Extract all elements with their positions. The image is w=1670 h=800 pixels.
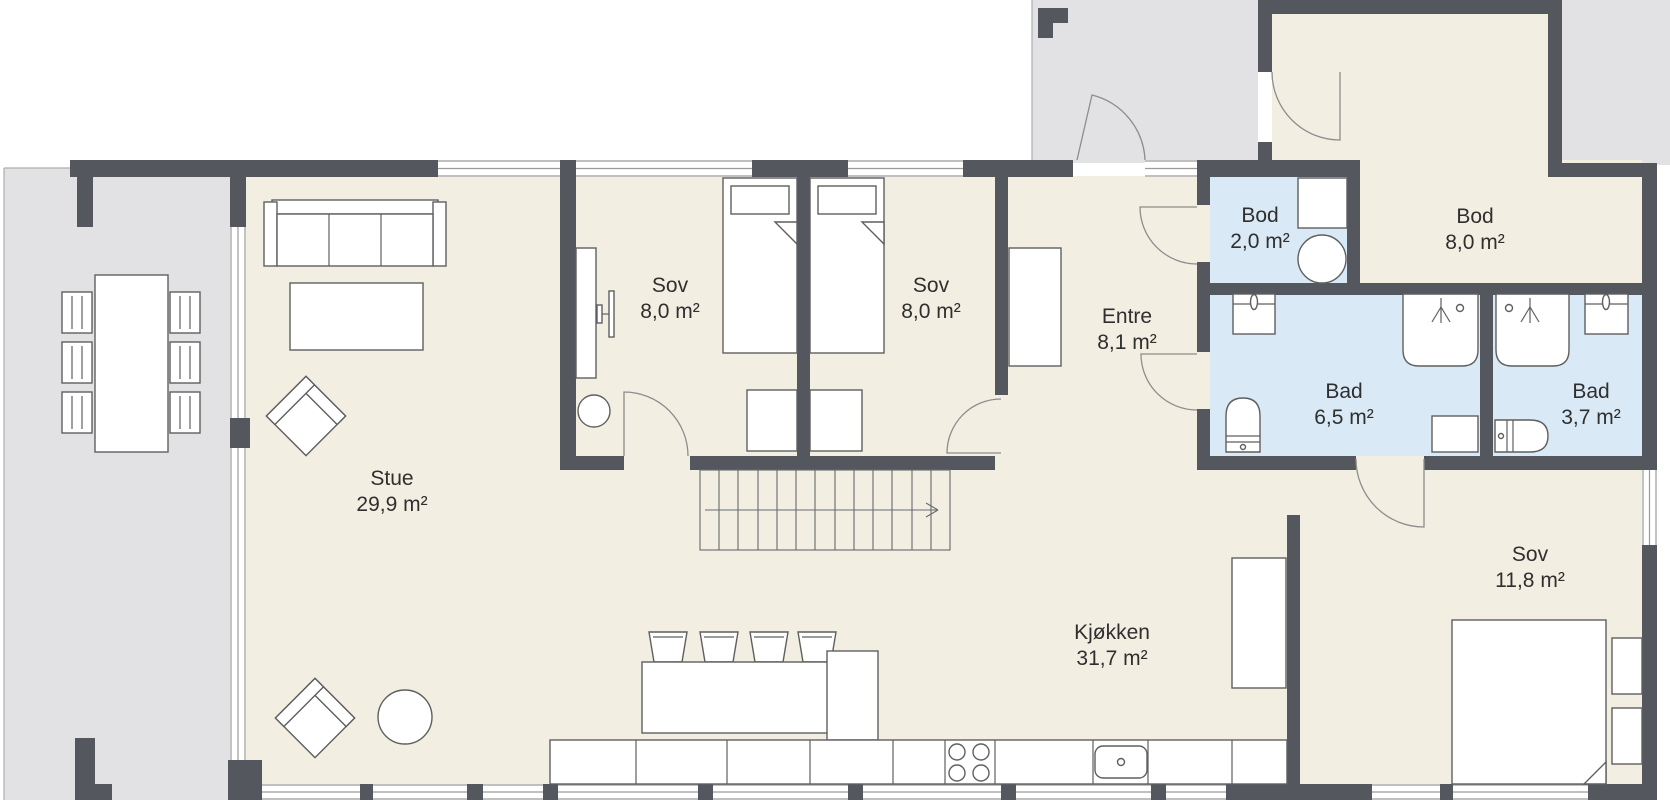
shelf (1298, 178, 1347, 228)
pillow (818, 186, 876, 214)
chair (62, 342, 92, 383)
bar-stool (750, 632, 788, 662)
chair (62, 392, 92, 433)
shower (1496, 294, 1569, 366)
terrace-dining-set (62, 275, 200, 452)
dining-table (95, 275, 168, 452)
outdoor-corner (1562, 0, 1670, 165)
entrance-porch (1032, 0, 1258, 163)
chair (170, 292, 200, 333)
room-area-bod-large: 8,0 m² (1445, 231, 1505, 254)
windows-south (262, 784, 1588, 800)
room-label-sov3: Sov (1512, 543, 1549, 566)
double-bed (1452, 620, 1606, 784)
coffee-table (290, 283, 423, 350)
shower (1403, 294, 1478, 366)
room-label-sov1: Sov (652, 274, 689, 297)
window-west-1 (230, 227, 246, 418)
hall-closet (1009, 248, 1061, 366)
room-label-sov2: Sov (913, 274, 950, 297)
window-north-3 (848, 160, 963, 177)
window-west-2 (230, 448, 246, 760)
window-east (1642, 470, 1657, 545)
side-table (378, 690, 432, 744)
room-area-sov2: 8,0 m² (901, 300, 961, 323)
sink (1233, 294, 1275, 334)
terrace (4, 168, 230, 800)
room-area-sov1: 8,0 m² (640, 300, 700, 323)
room-label-entre: Entre (1102, 305, 1152, 328)
chair (170, 392, 200, 433)
pillow (731, 186, 789, 214)
nightstand (1612, 708, 1642, 764)
room-area-entre: 8,1 m² (1097, 331, 1157, 354)
dresser (810, 390, 862, 451)
room-area-bad-small: 3,7 m² (1561, 406, 1621, 429)
kitchen-sink (1095, 746, 1147, 778)
sofa (264, 200, 446, 266)
room-label-bad-small: Bad (1572, 380, 1609, 403)
toilet (1495, 420, 1548, 452)
room-label-bod-small: Bod (1241, 204, 1278, 227)
room-label-bod-large: Bod (1456, 205, 1493, 228)
chair (62, 292, 92, 333)
kitchen-island (642, 662, 843, 733)
room-label-stue: Stue (370, 467, 413, 490)
kitchen-counter (550, 740, 1287, 784)
floors (246, 14, 1642, 784)
dresser (747, 390, 797, 451)
window-north-2 (576, 160, 752, 177)
nightstand (1612, 638, 1642, 694)
room-area-kjokken: 31,7 m² (1076, 647, 1147, 670)
stool (578, 395, 610, 427)
room-label-kjokken: Kjøkken (1074, 621, 1150, 644)
wardrobe (576, 248, 596, 378)
room-label-bad-large: Bad (1325, 380, 1362, 403)
room-area-stue: 29,9 m² (356, 493, 427, 516)
washing-machine (1298, 235, 1346, 283)
tall-cabinet (827, 651, 878, 740)
bar-stool (649, 632, 687, 662)
floor-plan: Stue 29,9 m² Sov 8,0 m² Sov 8,0 m² Entre… (0, 0, 1670, 800)
entre-furniture (1009, 248, 1061, 366)
floor-plan-canvas: Stue 29,9 m² Sov 8,0 m² Sov 8,0 m² Entre… (0, 0, 1670, 800)
room-area-sov3: 11,8 m² (1495, 569, 1565, 592)
bar-stool (700, 632, 738, 662)
room-area-bad-large: 6,5 m² (1314, 406, 1374, 429)
toilet (1226, 398, 1260, 452)
chair (170, 342, 200, 383)
window-sidelight (1145, 160, 1197, 177)
window-north-1 (438, 160, 560, 177)
washer (1432, 416, 1478, 452)
room-area-bod-small: 2,0 m² (1230, 230, 1290, 253)
fridge (1232, 558, 1286, 688)
sink (1585, 294, 1628, 334)
